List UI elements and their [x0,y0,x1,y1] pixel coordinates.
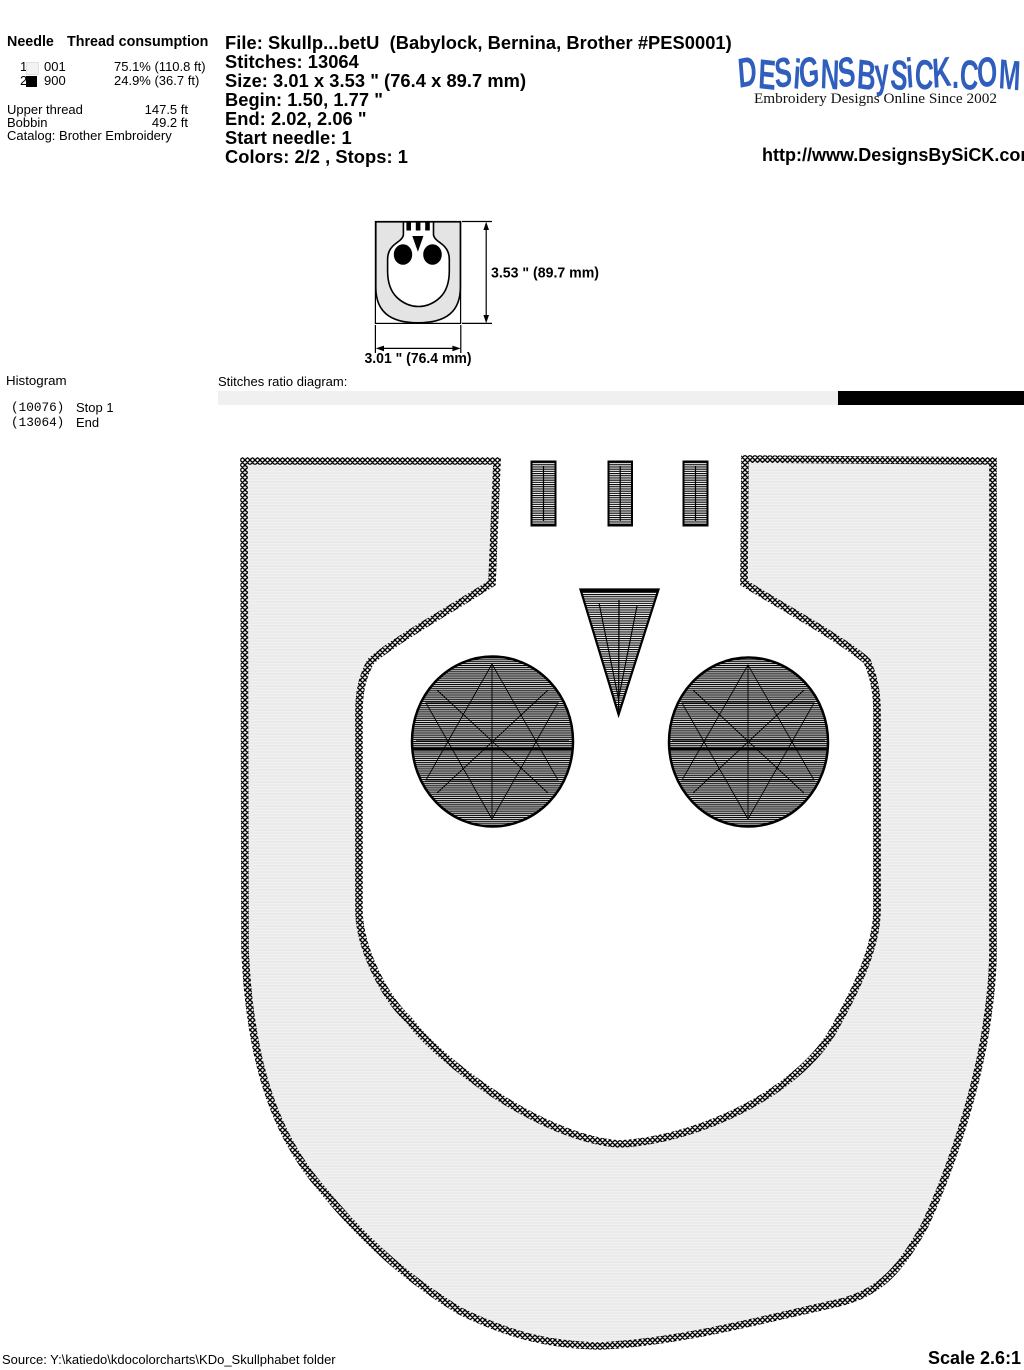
svg-text:3.01 " (76.4 mm): 3.01 " (76.4 mm) [365,350,472,367]
svg-text:http://www.DesignsBySiCK.com: http://www.DesignsBySiCK.com [762,145,1024,165]
svg-text:3.53 " (89.7 mm): 3.53 " (89.7 mm) [491,265,599,282]
svg-text:Embroidery Designs Online Sinc: Embroidery Designs Online Since 2002 [754,90,997,107]
